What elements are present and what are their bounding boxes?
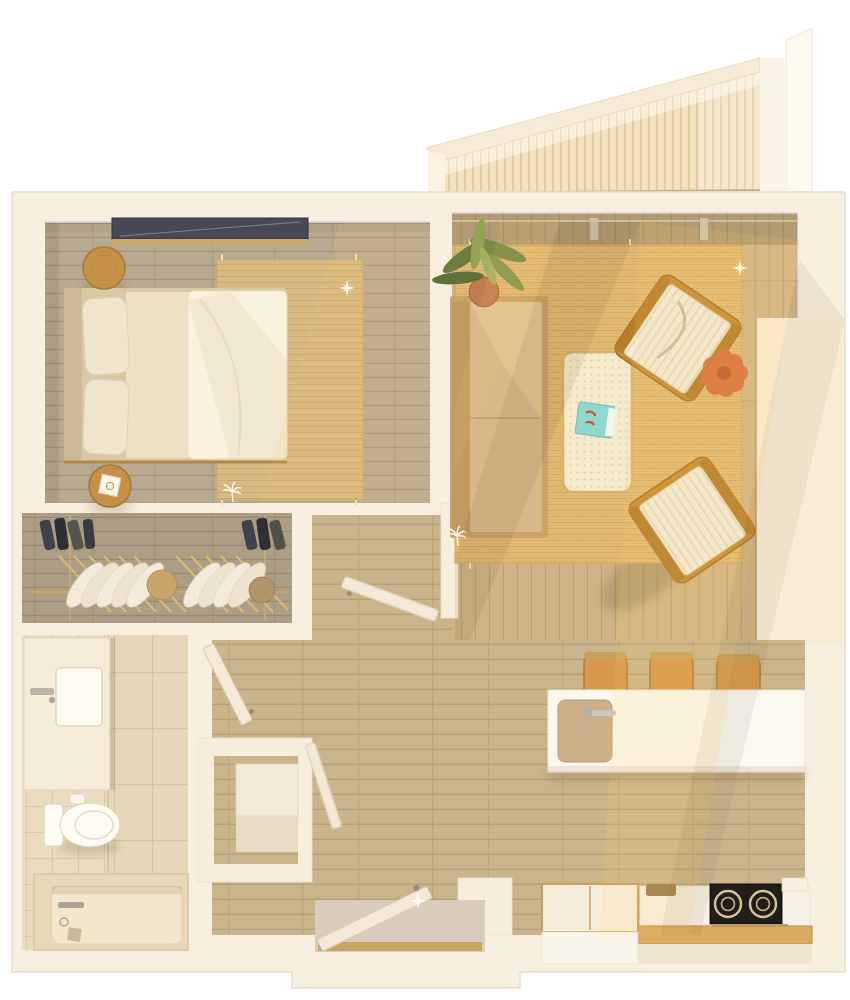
tub-inner-shadow: [52, 886, 182, 894]
hat-box: [147, 570, 177, 600]
toilet-bowl: [60, 803, 120, 847]
bed-pillow-top: [82, 297, 130, 375]
corridor-floor: [312, 515, 452, 640]
balcony-deck-right-light: [700, 70, 760, 192]
hat-box: [249, 577, 275, 603]
bedroom-window: [112, 218, 308, 245]
teal-book: [575, 402, 617, 439]
bathtub: [34, 874, 188, 950]
balcony-corner-wall: [786, 28, 812, 192]
bedroom-wall-shadow: [45, 222, 59, 503]
floor-plan-render: [0, 0, 850, 1000]
vanity-sink: [56, 668, 102, 726]
tub-drain: [67, 927, 82, 942]
balcony-parapet-right: [760, 58, 786, 192]
fridge-front: [542, 932, 638, 964]
window-sill: [112, 239, 308, 245]
wall-faucet: [30, 688, 54, 695]
toilet-paper-roll: [70, 794, 85, 804]
vanity: [24, 638, 115, 804]
bed-headboard: [64, 288, 82, 462]
entry-threshold: [318, 942, 482, 951]
candle-card: [98, 474, 121, 497]
water-heater-top: [236, 764, 298, 816]
shower-tile-wall: [108, 635, 188, 878]
shelf-items-right: [241, 517, 286, 550]
round-stool-nightstand-bottom: [89, 465, 131, 507]
counter-front: [638, 944, 812, 964]
round-stool-nightstand-top: [83, 247, 125, 289]
toilet: [44, 803, 120, 847]
balcony-parapet-left: [428, 150, 445, 196]
double-bed: [64, 288, 287, 462]
bed-pillow-bottom: [83, 379, 130, 454]
tub-faucet: [58, 902, 84, 908]
balcony: [426, 28, 812, 196]
bed-mattress-sheet: [126, 292, 192, 458]
water-heater-front: [236, 816, 298, 852]
counter-end-ledge: [782, 878, 808, 891]
floor-plan-canvas: [0, 0, 850, 1000]
vanity-edge-shadow: [110, 638, 115, 790]
two-burner-cooktop: [710, 884, 782, 924]
faucet-knob: [49, 697, 55, 703]
